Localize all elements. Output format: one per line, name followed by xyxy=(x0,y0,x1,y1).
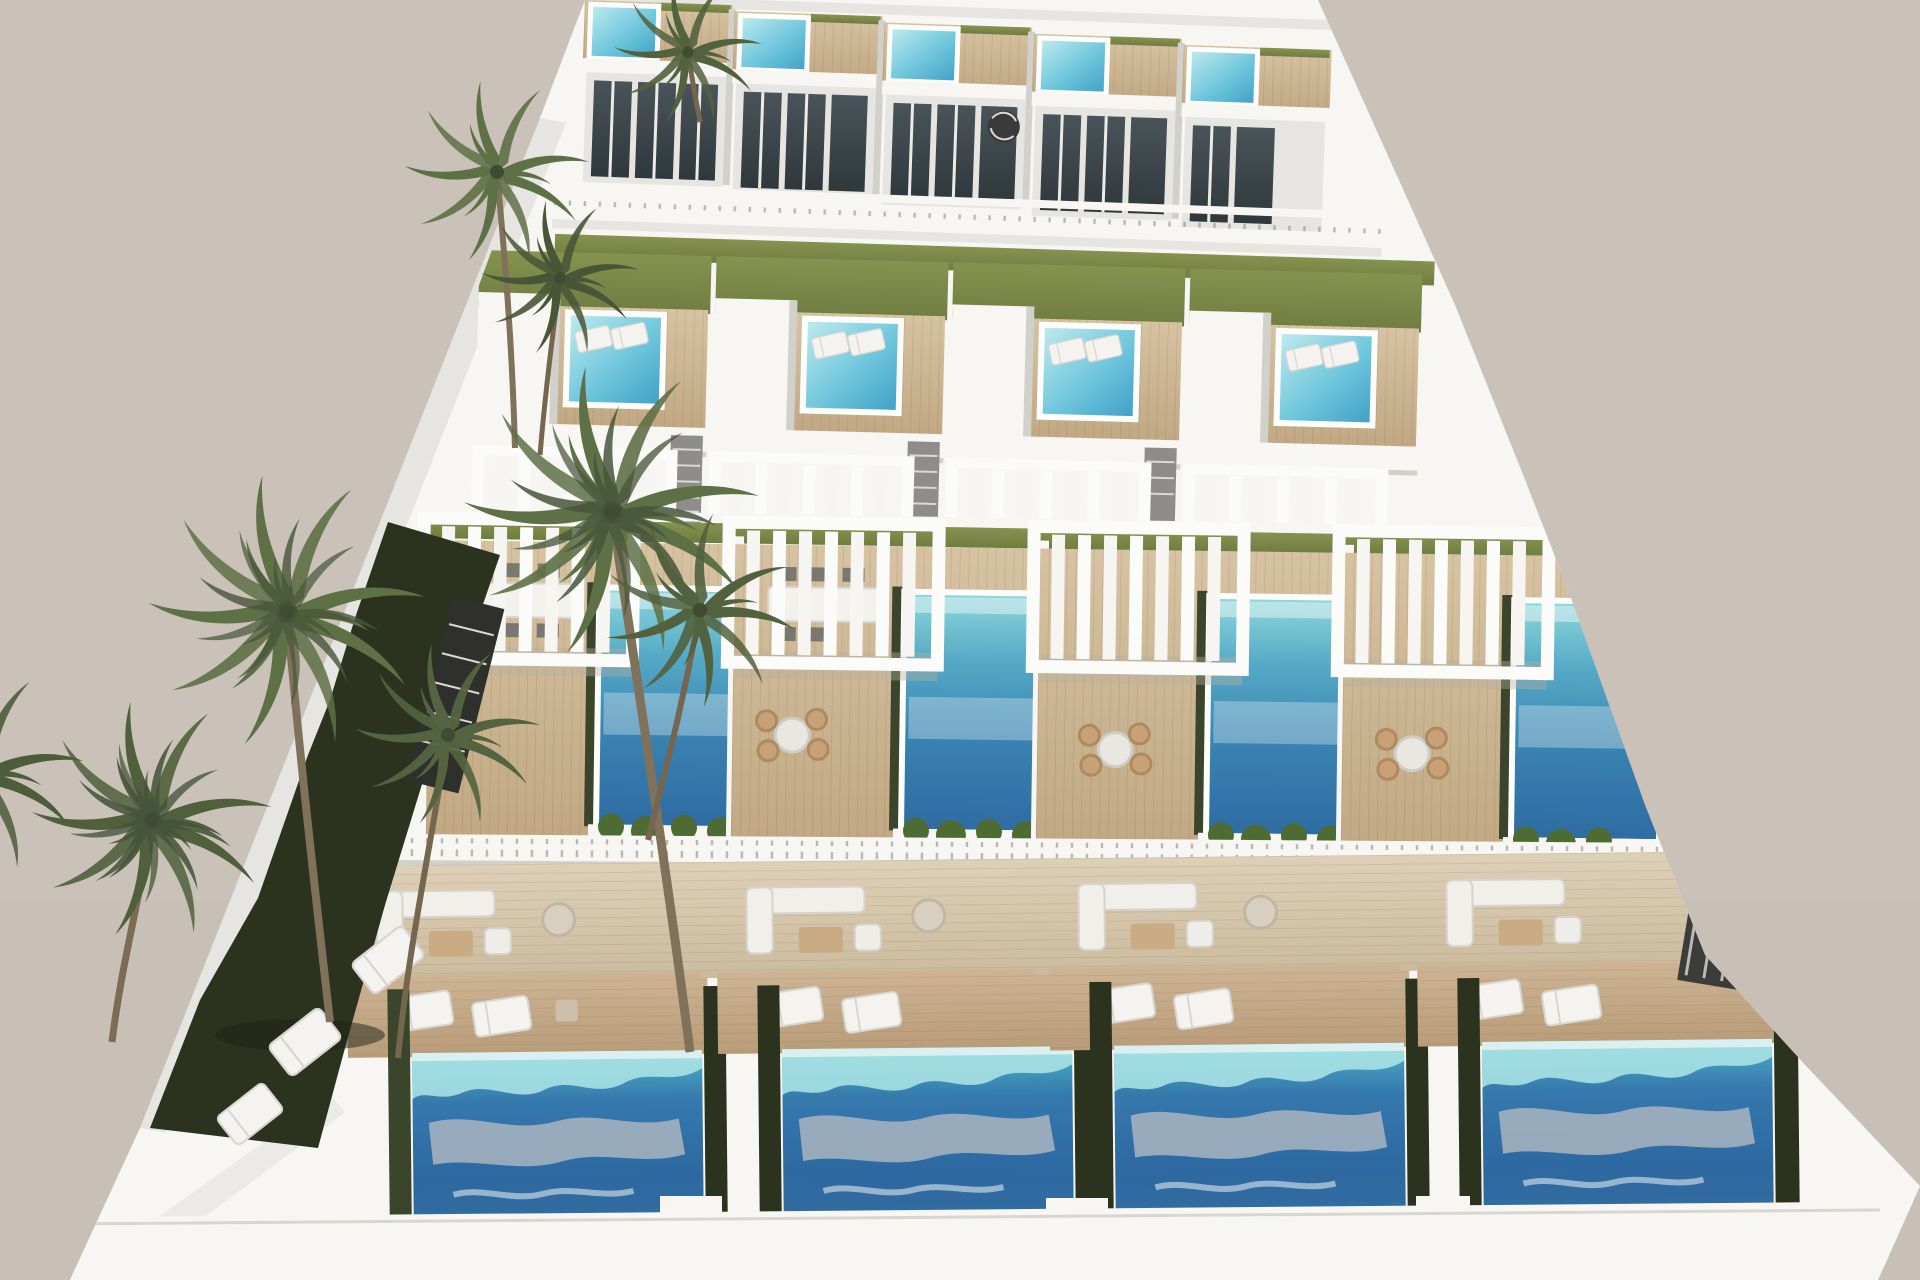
villa-top-2 xyxy=(728,11,885,198)
side-table xyxy=(555,999,577,1021)
roof-terrace-3 xyxy=(1030,526,1373,865)
ground-unit-3 xyxy=(1032,854,1446,1254)
pergola xyxy=(1337,531,1549,690)
papasan-chair xyxy=(912,900,944,932)
render-image xyxy=(0,0,1920,1280)
roof-pool xyxy=(1040,325,1138,419)
pergola xyxy=(727,522,939,681)
pergola xyxy=(1032,526,1244,685)
roof-pool xyxy=(1276,331,1374,425)
papasan-chair xyxy=(542,903,574,935)
villa-top-5 xyxy=(1177,45,1331,232)
papasan-chair xyxy=(1244,896,1276,928)
villa-top-4 xyxy=(1028,34,1185,221)
roof-terrace-2 xyxy=(725,522,1068,861)
roof-pool xyxy=(803,319,901,413)
